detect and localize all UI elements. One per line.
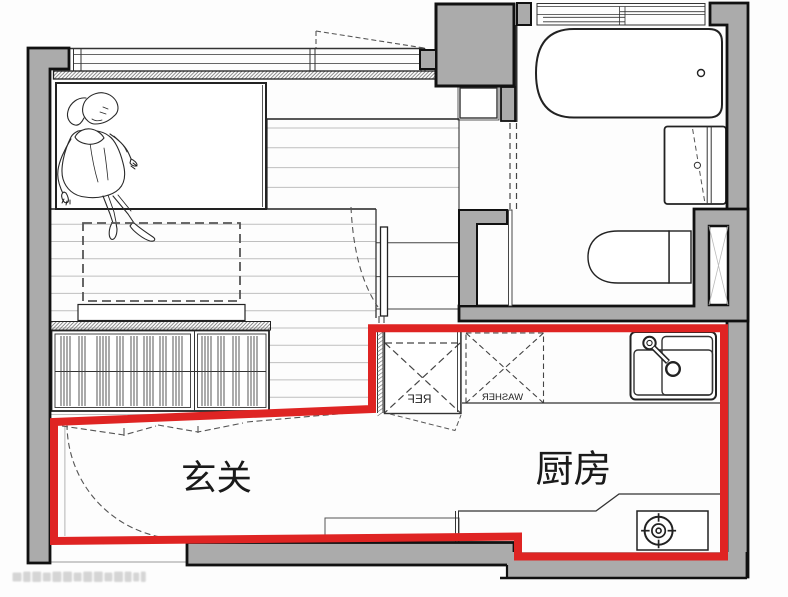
svg-text:WASHER: WASHER xyxy=(482,392,523,403)
svg-text:REF: REF xyxy=(408,392,432,406)
